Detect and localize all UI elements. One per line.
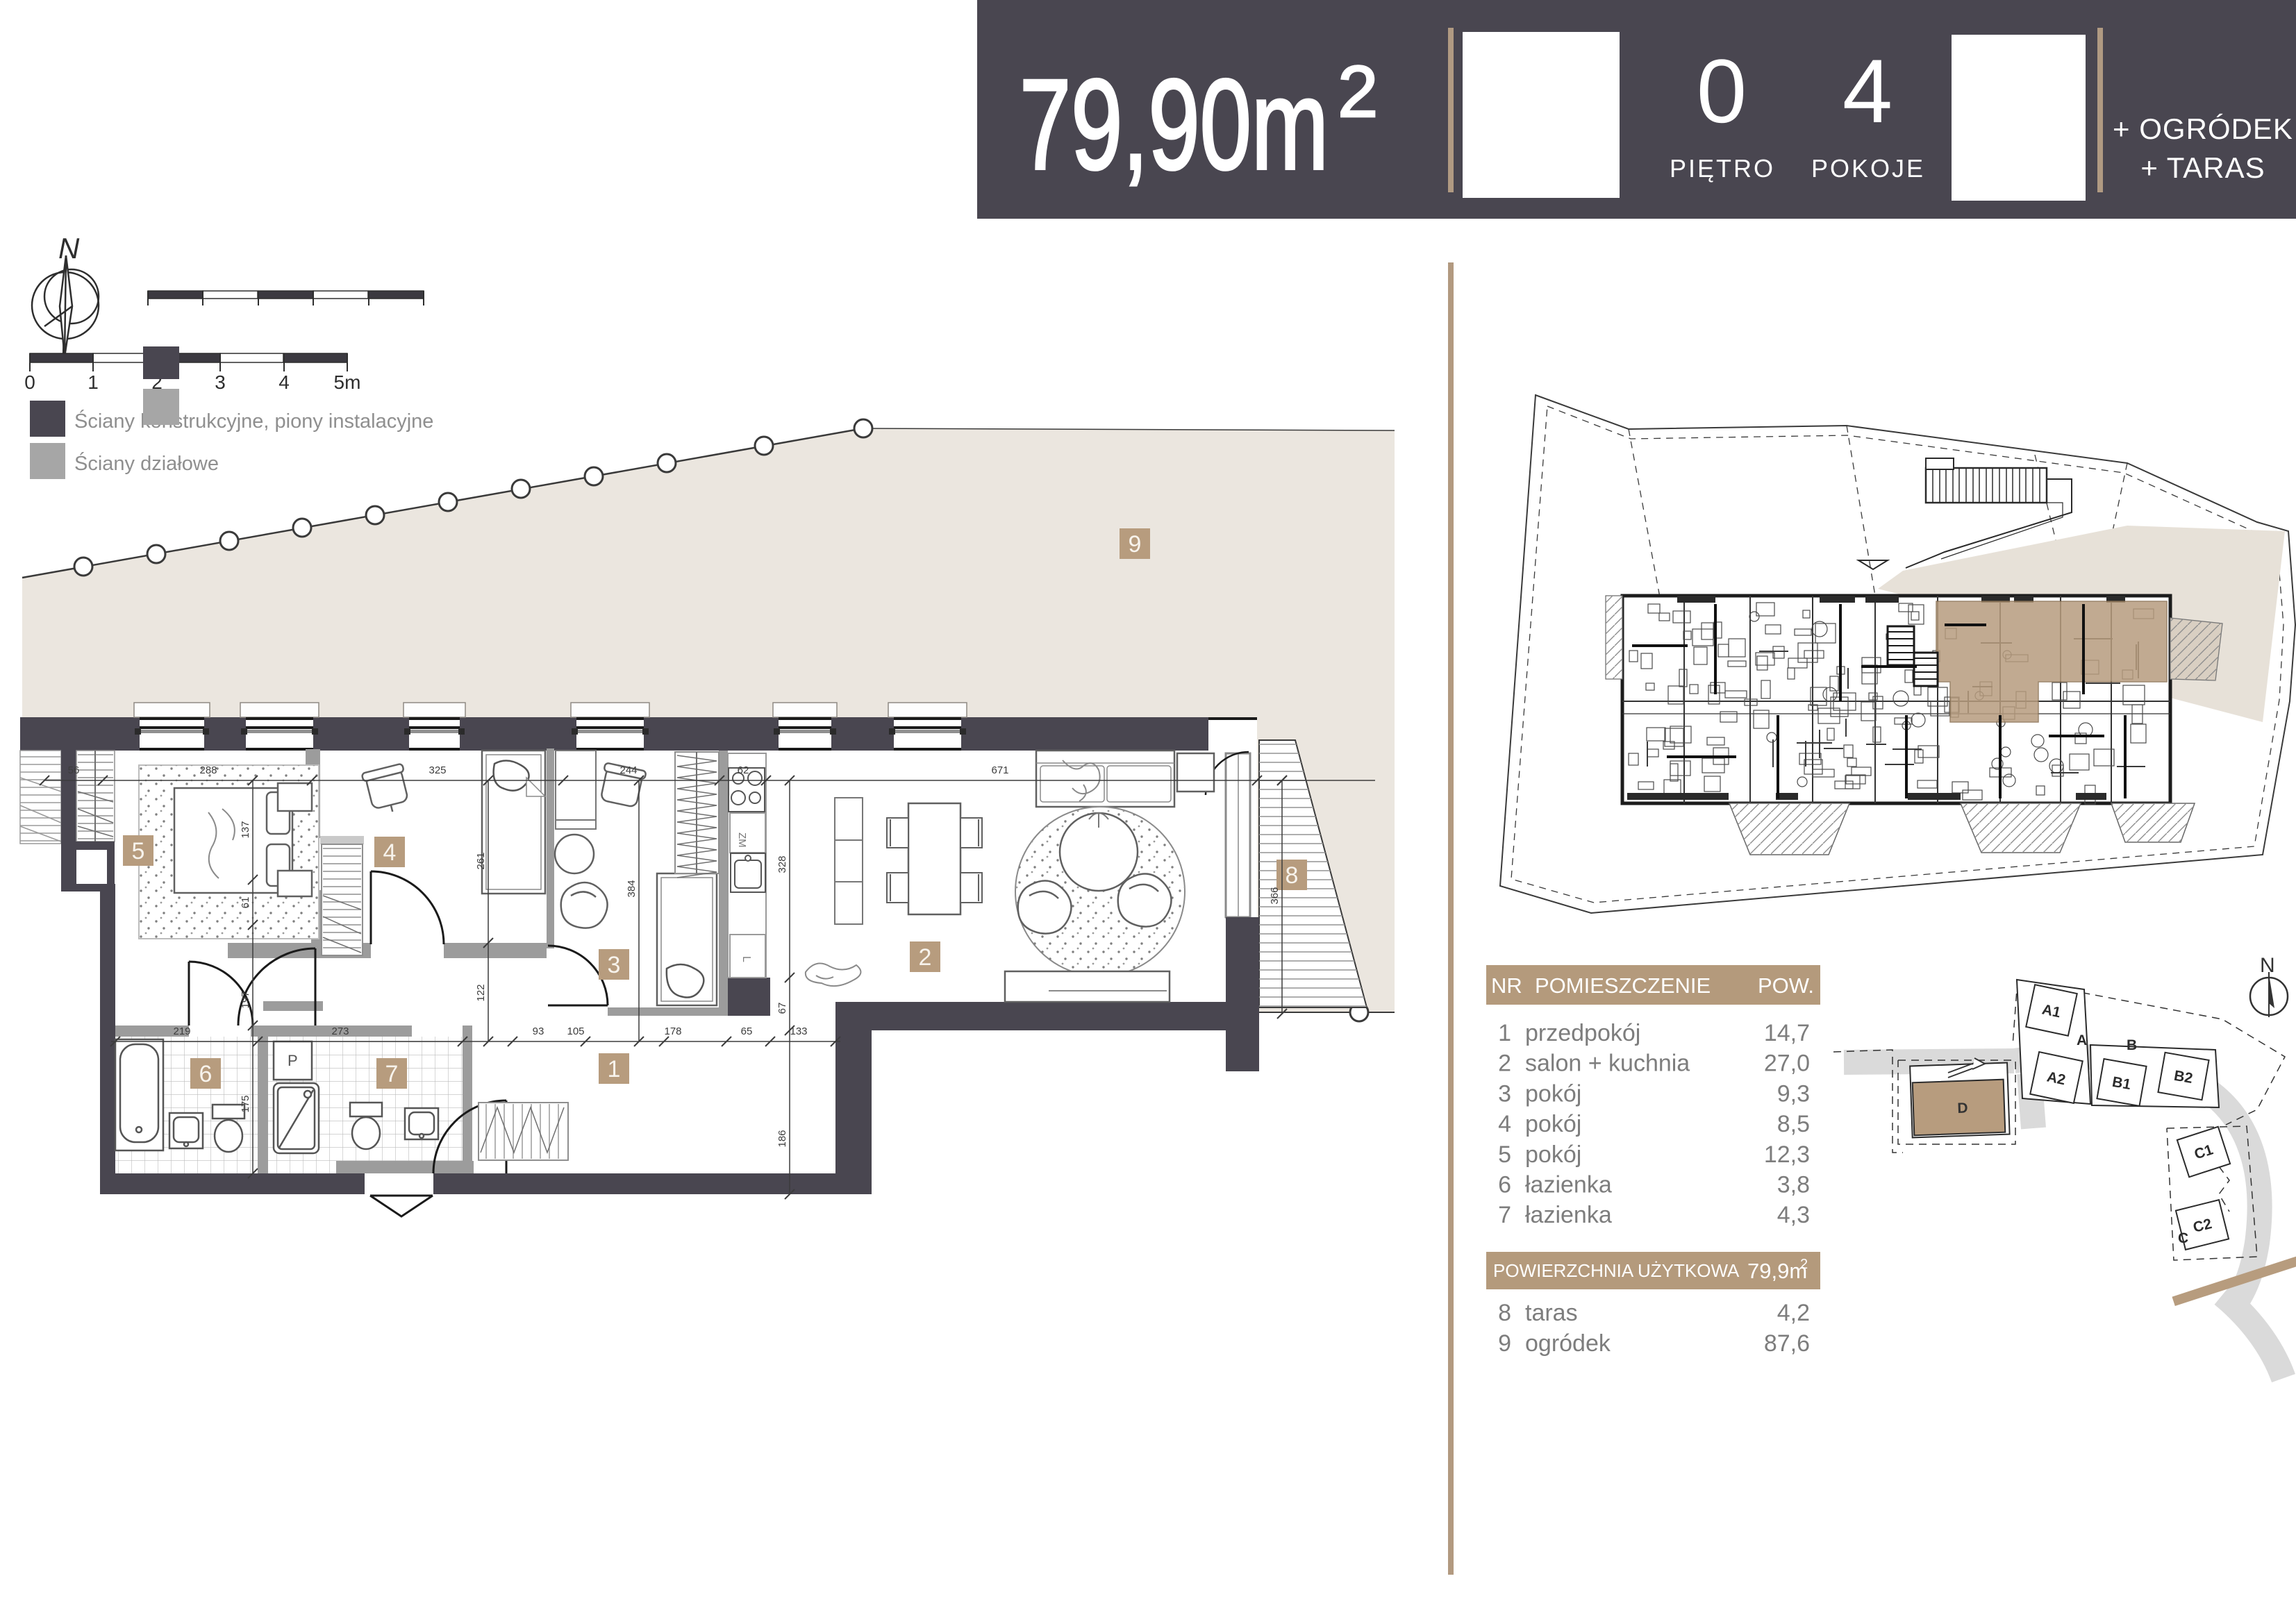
svg-text:B2: B2 [2173,1068,2194,1087]
svg-text:65: 65 [741,1026,753,1037]
svg-text:A: A [2077,1032,2087,1048]
svg-text:197: 197 [240,991,251,1008]
svg-text:B: B [2127,1037,2137,1053]
svg-text:14,7: 14,7 [1764,1020,1810,1046]
svg-text:366: 366 [1269,887,1281,904]
svg-text:ZM: ZM [736,832,748,848]
svg-text:3,8: 3,8 [1777,1172,1810,1198]
svg-text:325: 325 [429,764,446,776]
svg-text:0: 0 [24,371,35,393]
svg-text:2: 2 [919,944,932,971]
svg-text:9: 9 [1498,1330,1511,1357]
svg-text:P: P [288,1052,298,1069]
svg-text:łazienka: łazienka [1525,1172,1612,1198]
svg-text:8,5: 8,5 [1777,1111,1810,1137]
svg-text:1: 1 [88,371,99,393]
svg-text:POWIERZCHNIA UŻYTKOWA: POWIERZCHNIA UŻYTKOWA [1493,1260,1740,1281]
svg-text:87,6: 87,6 [1764,1330,1810,1357]
svg-text:ogródek: ogródek [1525,1330,1611,1357]
svg-text:4: 4 [383,839,397,866]
svg-text:3: 3 [215,371,226,393]
svg-text:Ściany działowe: Ściany działowe [74,451,219,475]
svg-text:2: 2 [1498,1050,1511,1077]
svg-text:4,2: 4,2 [1777,1300,1810,1326]
svg-text:4: 4 [1498,1111,1511,1137]
svg-text:4: 4 [1842,40,1892,142]
svg-text:67: 67 [776,1003,788,1014]
svg-text:261: 261 [475,852,487,869]
svg-text:9,3: 9,3 [1777,1080,1810,1107]
svg-text:0: 0 [1697,40,1747,142]
svg-text:122: 122 [475,984,487,1001]
svg-text:POMIESZCZENIE: POMIESZCZENIE [1535,973,1711,998]
svg-text:6: 6 [1498,1172,1511,1198]
svg-text:62: 62 [738,764,749,776]
svg-text:taras: taras [1525,1300,1578,1326]
svg-text:przedpokój: przedpokój [1525,1020,1640,1046]
svg-text:61: 61 [240,897,251,909]
svg-text:2: 2 [1800,1257,1808,1272]
svg-text:288: 288 [199,764,217,776]
svg-text:27,0: 27,0 [1764,1050,1810,1077]
svg-text:+ OGRÓDEK: + OGRÓDEK [2113,112,2293,145]
svg-text:pokój: pokój [1525,1141,1581,1168]
svg-text:671: 671 [991,764,1008,776]
svg-text:POKOJE: POKOJE [1811,154,1925,183]
svg-text:244: 244 [619,764,637,776]
svg-text:N: N [58,232,80,265]
svg-text:B1: B1 [2111,1074,2133,1093]
svg-text:1: 1 [608,1056,621,1082]
svg-text:pokój: pokój [1525,1080,1581,1107]
svg-text:8: 8 [1498,1300,1511,1326]
svg-text:9: 9 [1129,531,1142,558]
svg-text:2: 2 [1338,51,1378,133]
svg-text:137: 137 [240,821,251,838]
svg-text:12,3: 12,3 [1764,1141,1810,1168]
svg-text:NR: NR [1491,973,1522,998]
svg-text:salon + kuchnia: salon + kuchnia [1525,1050,1690,1077]
svg-text:L: L [740,956,752,962]
svg-text:384: 384 [626,880,638,897]
svg-text:3: 3 [608,952,621,978]
svg-text:4,3: 4,3 [1777,1202,1810,1228]
svg-text:79,9m: 79,9m [1747,1259,1807,1283]
svg-text:N: N [2260,954,2275,977]
svg-text:328: 328 [776,855,788,873]
svg-text:186: 186 [776,1130,788,1147]
svg-text:Ściany konstrukcyjne, piony in: Ściany konstrukcyjne, piony instalacyjne [74,409,433,433]
svg-text:1: 1 [1498,1020,1511,1046]
svg-text:łazienka: łazienka [1525,1202,1612,1228]
svg-text:105: 105 [567,1026,584,1037]
svg-text:56: 56 [68,764,80,776]
svg-text:178: 178 [664,1026,681,1037]
svg-text:7: 7 [1498,1202,1511,1228]
svg-text:7: 7 [385,1061,399,1087]
svg-text:5: 5 [132,838,145,864]
svg-text:pokój: pokój [1525,1111,1581,1137]
svg-text:8: 8 [1286,862,1299,889]
svg-text:5: 5 [1498,1141,1511,1168]
svg-text:+ TARAS: + TARAS [2140,151,2265,184]
svg-text:93: 93 [533,1026,544,1037]
svg-text:5m: 5m [334,371,361,393]
svg-text:79,90m: 79,90m [1020,53,1329,196]
svg-text:273: 273 [331,1026,349,1037]
svg-text:D: D [1957,1100,1968,1117]
svg-text:175: 175 [240,1095,251,1112]
svg-text:219: 219 [173,1026,190,1037]
svg-text:3: 3 [1498,1080,1511,1107]
svg-text:C: C [2178,1230,2188,1246]
svg-text:6: 6 [199,1061,213,1087]
svg-text:PIĘTRO: PIĘTRO [1670,154,1775,183]
svg-text:POW.: POW. [1758,973,1814,998]
svg-text:4: 4 [278,371,290,393]
